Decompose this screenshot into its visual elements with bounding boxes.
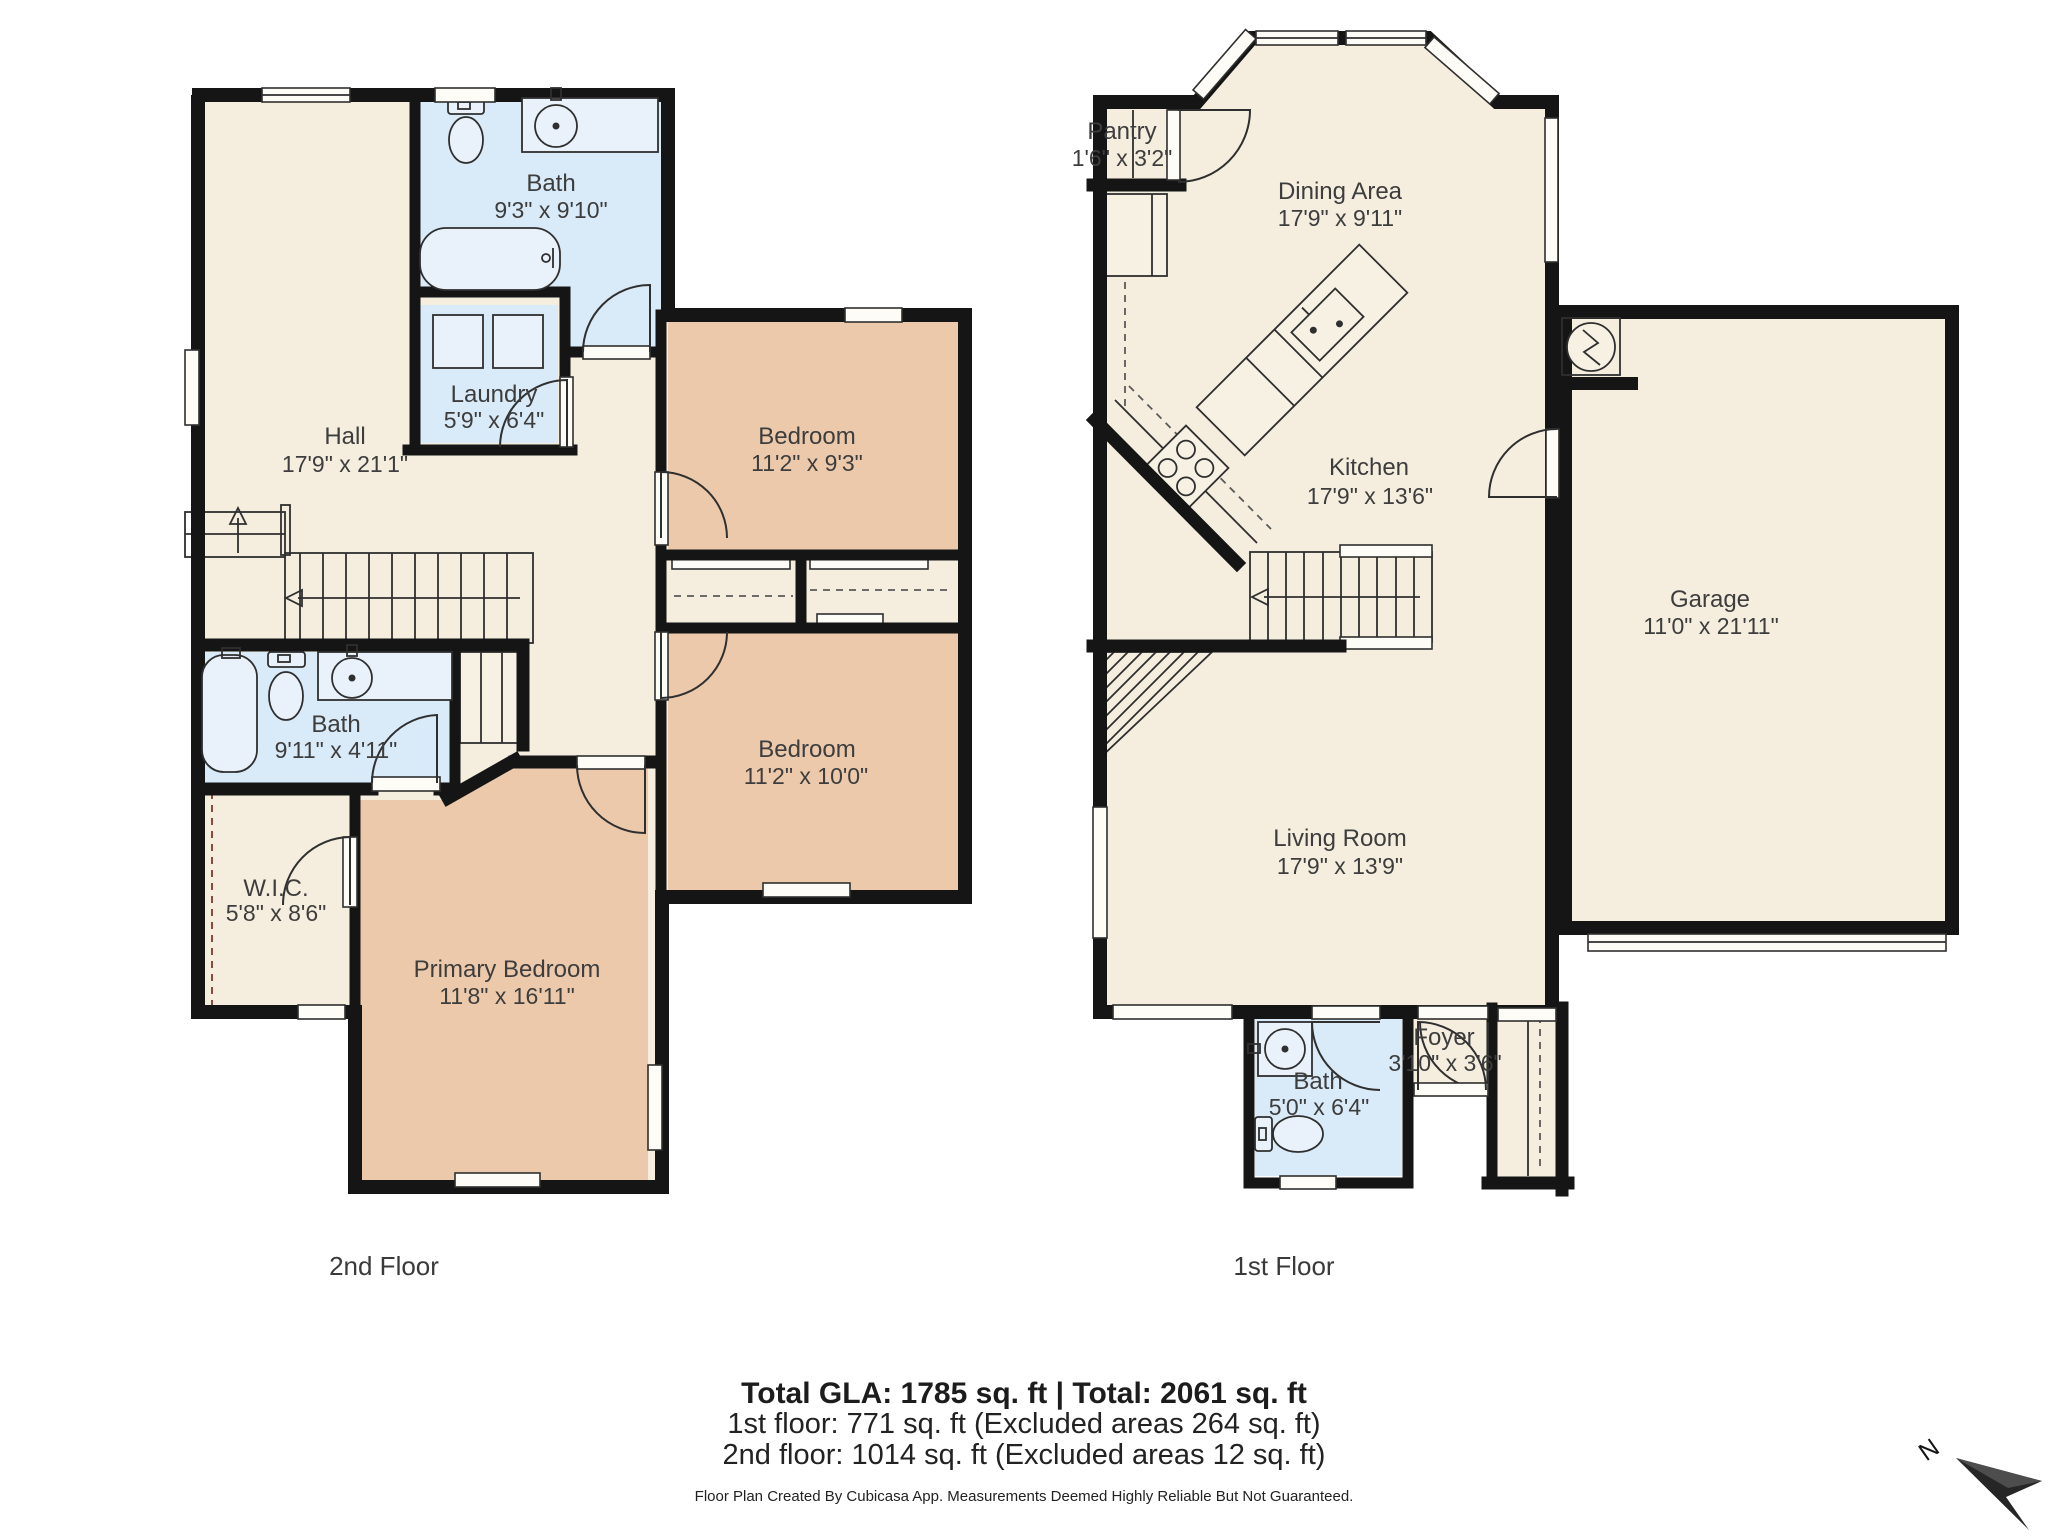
room-label-bath-mid: Bath bbox=[311, 711, 360, 738]
sink-icon bbox=[522, 88, 658, 152]
window bbox=[1113, 1005, 1232, 1019]
room-dims-living: 17'9" x 13'9" bbox=[1277, 853, 1403, 879]
window bbox=[435, 88, 495, 102]
disclaimer-text: Floor Plan Created By Cubicasa App. Meas… bbox=[0, 1488, 2048, 1505]
washer-icon bbox=[433, 315, 483, 368]
room-label-laundry: Laundry bbox=[451, 381, 538, 408]
room-dims-garage: 11'0" x 21'11" bbox=[1643, 613, 1779, 639]
dryer-icon bbox=[493, 315, 543, 368]
room-dims-bath1: 5'0" x 6'4" bbox=[1269, 1094, 1370, 1120]
floor-plan-page: Hall 17'9" x 21'1" Bath 9'3" x 9'10" Lau… bbox=[0, 0, 2048, 1536]
sink-icon bbox=[318, 645, 452, 700]
room-label-living: Living Room bbox=[1273, 825, 1406, 852]
room-dims-laundry: 5'9" x 6'4" bbox=[444, 407, 545, 433]
room-dims-dining: 17'9" x 9'11" bbox=[1278, 205, 1402, 231]
toilet-icon bbox=[1255, 1116, 1323, 1152]
window bbox=[845, 308, 902, 322]
room-label-hall: Hall bbox=[324, 423, 365, 450]
room-dims-pantry: 1'6" x 3'2" bbox=[1072, 145, 1173, 171]
room-dims-bath-mid: 9'11" x 4'11" bbox=[275, 737, 398, 763]
window bbox=[648, 1065, 662, 1150]
first-floor-area-text: 1st floor: 771 sq. ft (Excluded areas 26… bbox=[0, 1409, 2048, 1440]
room-label-dining: Dining Area bbox=[1278, 178, 1403, 205]
bathtub-icon bbox=[202, 648, 257, 772]
room-dims-hall: 17'9" x 21'1" bbox=[282, 451, 408, 477]
total-gla-text: Total GLA: 1785 sq. ft | Total: 2061 sq.… bbox=[0, 1378, 2048, 1409]
garage-door bbox=[1588, 934, 1946, 951]
toilet-icon bbox=[268, 652, 305, 720]
bathtub-icon bbox=[420, 228, 560, 290]
second-floor-label: 2nd Floor bbox=[329, 1251, 439, 1281]
second-floor-plan: Hall 17'9" x 21'1" Bath 9'3" x 9'10" Lau… bbox=[185, 88, 965, 1281]
floor-plan-canvas: Hall 17'9" x 21'1" Bath 9'3" x 9'10" Lau… bbox=[0, 0, 2048, 1536]
first-floor-label: 1st Floor bbox=[1233, 1251, 1334, 1281]
room-label-primary: Primary Bedroom bbox=[414, 956, 601, 983]
room-label-bath-top: Bath bbox=[526, 170, 575, 197]
first-floor-plan: Pantry 1'6" x 3'2" Dining Area 17'9" x 9… bbox=[1072, 30, 1952, 1281]
room-dims-foyer: 3'10" x 3'6" bbox=[1388, 1050, 1501, 1076]
window bbox=[455, 1173, 540, 1187]
room-label-wic: W.I.C. bbox=[243, 875, 308, 902]
fridge-icon bbox=[1100, 194, 1167, 276]
window bbox=[763, 883, 850, 897]
window bbox=[1093, 807, 1107, 938]
room-label-pantry: Pantry bbox=[1087, 118, 1156, 145]
window bbox=[1280, 1176, 1336, 1189]
window bbox=[1545, 118, 1558, 262]
room-label-garage: Garage bbox=[1670, 586, 1750, 613]
room-label-kitchen: Kitchen bbox=[1329, 454, 1409, 481]
room-dims-bedroom1: 11'2" x 9'3" bbox=[751, 450, 863, 476]
room-label-bedroom1: Bedroom bbox=[758, 423, 855, 450]
window bbox=[185, 350, 199, 425]
window bbox=[298, 1005, 345, 1019]
room-dims-bath-top: 9'3" x 9'10" bbox=[494, 197, 607, 223]
hall-closet bbox=[460, 652, 523, 743]
room-dims-bedroom2: 11'2" x 10'0" bbox=[744, 763, 868, 789]
second-floor-area-text: 2nd floor: 1014 sq. ft (Excluded areas 1… bbox=[0, 1440, 2048, 1471]
room-label-bedroom2: Bedroom bbox=[758, 736, 855, 763]
room-label-foyer: Foyer bbox=[1413, 1024, 1474, 1051]
room-dims-kitchen: 17'9" x 13'6" bbox=[1307, 483, 1433, 509]
room-label-bath1: Bath bbox=[1293, 1068, 1342, 1095]
area-summary: Total GLA: 1785 sq. ft | Total: 2061 sq.… bbox=[0, 1378, 2048, 1505]
room-dims-primary: 11'8" x 16'11" bbox=[439, 983, 575, 1009]
room-dims-wic: 5'8" x 8'6" bbox=[226, 900, 327, 926]
panel-nook-wall bbox=[1558, 377, 1638, 390]
toilet-icon bbox=[448, 98, 484, 163]
entry-closet-floor bbox=[1494, 1008, 1564, 1178]
